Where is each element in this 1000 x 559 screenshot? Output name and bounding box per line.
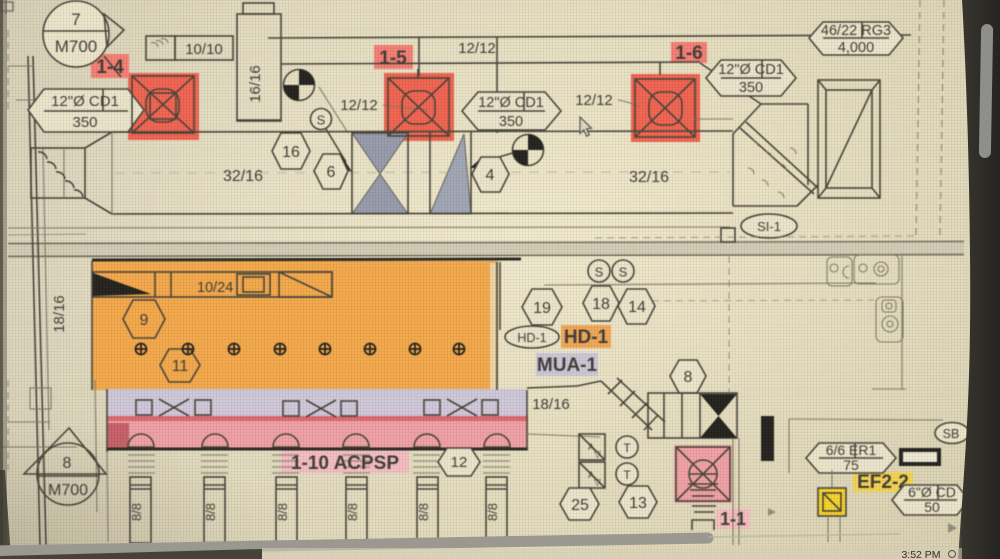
svg-text:3:52 PM: 3:52 PM bbox=[901, 549, 940, 559]
